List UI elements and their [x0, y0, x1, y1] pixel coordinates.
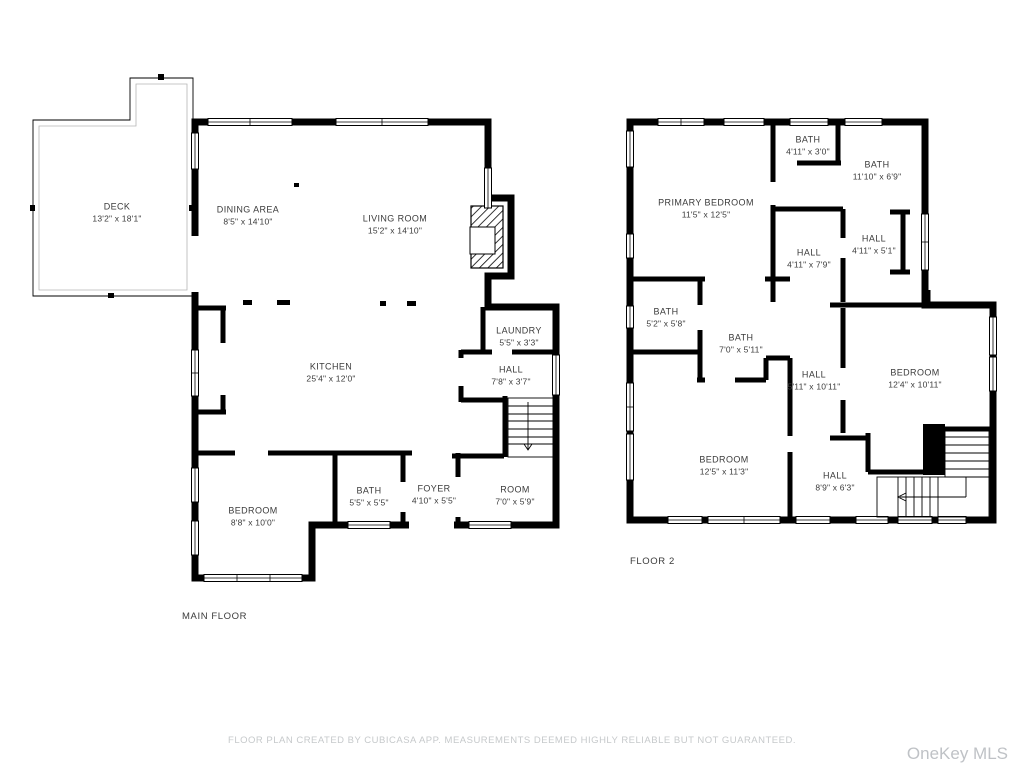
main-floor-title: MAIN FLOOR — [182, 611, 247, 622]
main-floor-plan — [30, 74, 560, 582]
room-label-hall-c: HALL5'11" x 10'11" — [788, 370, 841, 393]
room-label-bath-b: BATH11'10" x 6'9" — [853, 160, 902, 183]
room-label-bedroom-b: BEDROOM12'5" x 11'3" — [699, 455, 748, 478]
room-label-bath-main: BATH5'5" x 5'5" — [349, 486, 388, 509]
room-label-kitchen: KITCHEN25'4" x 12'0" — [306, 362, 355, 385]
room-label-room: ROOM7'0" x 5'9" — [495, 485, 534, 508]
entry-door-opening — [409, 520, 454, 530]
room-label-bath-c: BATH5'2" x 5'8" — [646, 307, 685, 330]
onekey-mls-watermark: OneKey MLS — [907, 744, 1008, 764]
room-label-dining-area: DINING AREA8'5" x 14'10" — [217, 205, 279, 228]
wall-stubs — [243, 183, 416, 306]
room-label-deck: DECK13'2" x 18'1" — [92, 202, 141, 225]
room-label-bath-a: BATH4'11" x 3'0" — [786, 135, 830, 158]
stair-wall-mass — [923, 424, 945, 475]
room-label-living-room: LIVING ROOM15'2" x 14'10" — [363, 214, 427, 237]
room-label-hall-d: HALL8'9" x 6'3" — [815, 471, 854, 494]
room-label-primary-bedroom: PRIMARY BEDROOM11'5" x 12'5" — [658, 198, 754, 221]
room-label-hall-b: HALL4'11" x 5'1" — [852, 234, 896, 257]
deck-outline — [30, 74, 195, 298]
room-label-foyer: FOYER4'10" x 5'5" — [412, 484, 456, 507]
disclaimer-text: FLOOR PLAN CREATED BY CUBICASA APP. MEAS… — [0, 735, 1024, 746]
room-label-bath-d: BATH7'0" x 5'11" — [719, 333, 763, 356]
floor2-title: FLOOR 2 — [630, 556, 675, 567]
room-label-bedroom-main: BEDROOM8'8" x 10'0" — [228, 506, 277, 529]
room-label-hall-a: HALL4'11" x 7'9" — [787, 248, 831, 271]
main-floor-stairs — [508, 398, 553, 457]
room-label-laundry: LAUNDRY5'5" x 3'3" — [496, 326, 542, 349]
room-label-bedroom-a: BEDROOM12'4" x 10'11" — [888, 368, 942, 391]
deck-door-opening — [190, 236, 200, 292]
floorplan-page: DECK13'2" x 18'1" DINING AREA8'5" x 14'1… — [0, 0, 1024, 768]
fireplace — [470, 206, 503, 268]
room-label-hall-main: HALL7'8" x 3'7" — [491, 365, 530, 388]
